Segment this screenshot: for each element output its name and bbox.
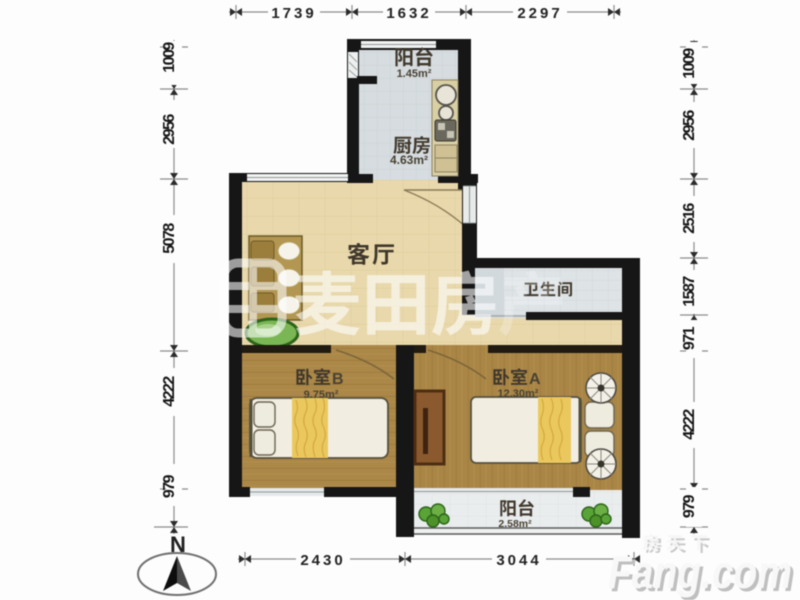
svg-text:2956: 2956 — [681, 110, 698, 141]
svg-text:3044: 3044 — [496, 552, 541, 569]
svg-text:2297: 2297 — [517, 5, 562, 22]
svg-text:4222: 4222 — [681, 409, 698, 440]
svg-text:979: 979 — [161, 474, 178, 498]
svg-text:B: B — [332, 371, 344, 388]
svg-text:1739: 1739 — [271, 5, 316, 22]
svg-text:1632: 1632 — [386, 5, 431, 22]
svg-text:2956: 2956 — [161, 114, 178, 145]
svg-text:5078: 5078 — [161, 223, 178, 254]
svg-text:1009: 1009 — [161, 42, 178, 73]
svg-text:4222: 4222 — [161, 376, 178, 407]
svg-text:1587: 1587 — [681, 276, 698, 307]
svg-text:9.75m²: 9.75m² — [304, 389, 339, 401]
svg-text:979: 979 — [681, 494, 698, 518]
svg-text:1009: 1009 — [681, 48, 698, 79]
svg-text:2516: 2516 — [681, 203, 698, 234]
svg-text:2430: 2430 — [300, 552, 345, 569]
svg-text:12.30m²: 12.30m² — [498, 388, 539, 400]
svg-text:971: 971 — [681, 326, 698, 350]
svg-text:Fang.com: Fang.com — [608, 546, 792, 598]
svg-text:A: A — [529, 371, 541, 388]
svg-text:4.63m²: 4.63m² — [390, 153, 428, 167]
svg-text:2.58m²: 2.58m² — [498, 518, 532, 530]
svg-text:1.45m²: 1.45m² — [397, 68, 432, 80]
